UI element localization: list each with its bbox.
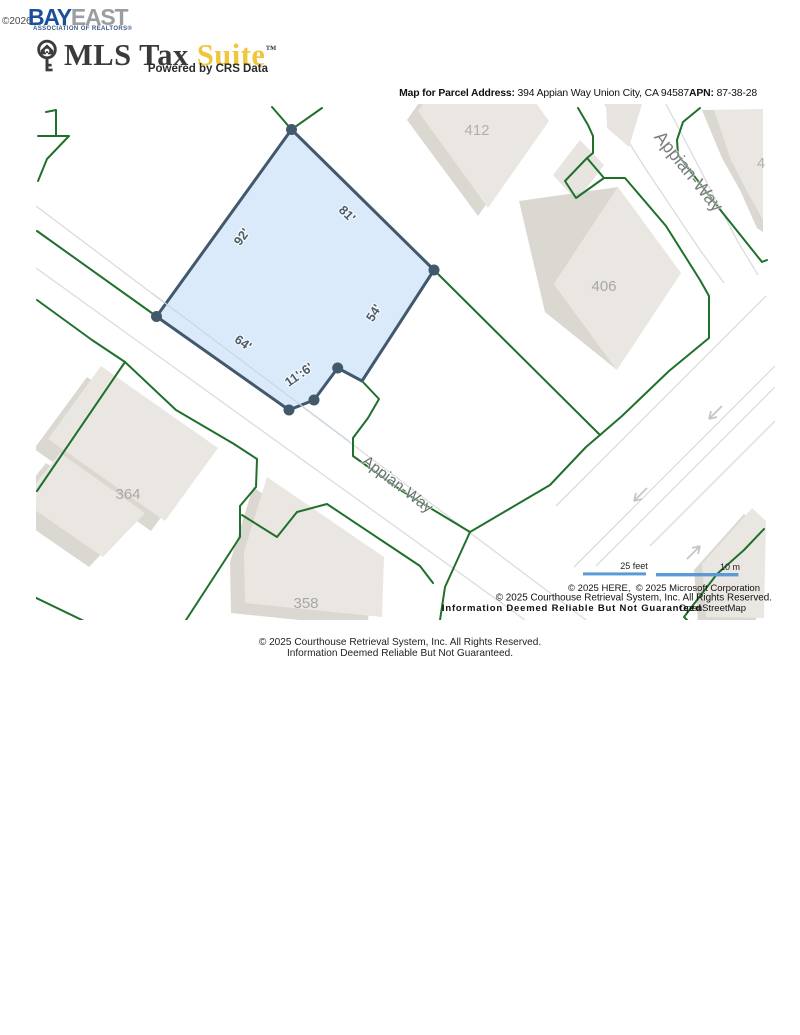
svg-text:358: 358 — [293, 595, 318, 612]
svg-text:OpenStreetMap: OpenStreetMap — [679, 603, 746, 614]
svg-text:364: 364 — [115, 486, 140, 503]
svg-text:Information Deemed Reliable Bu: Information Deemed Reliable But Not Guar… — [442, 603, 702, 614]
svg-text:25 feet: 25 feet — [620, 561, 648, 571]
svg-text:© 2025 Courthouse Retrieval Sy: © 2025 Courthouse Retrieval System, Inc.… — [496, 593, 772, 604]
svg-text:Appian-Way: Appian-Way — [359, 453, 436, 517]
svg-text:412: 412 — [464, 122, 489, 139]
svg-text:406: 406 — [591, 278, 616, 295]
svg-text:4: 4 — [757, 155, 765, 172]
svg-text:10 m: 10 m — [720, 562, 740, 572]
